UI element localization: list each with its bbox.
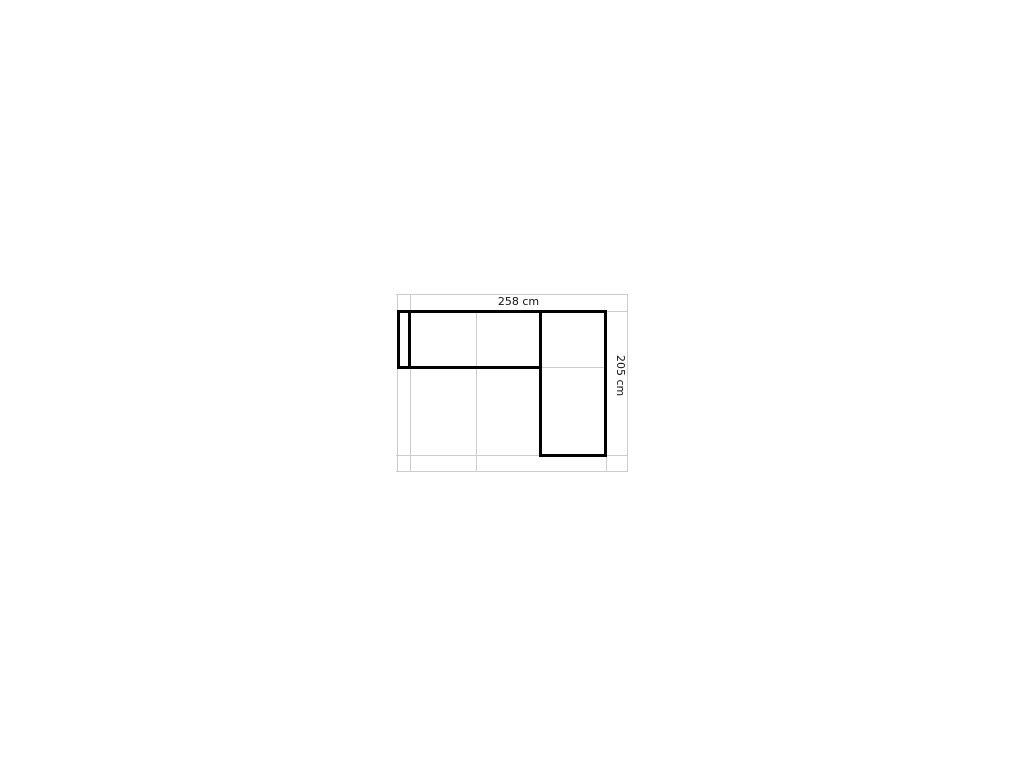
sofa-body-outline — [397, 310, 542, 369]
page-canvas: 258 cm 205 cm — [0, 0, 1024, 768]
height-dimension-label: 205 cm — [612, 294, 628, 457]
chaise-outline — [539, 310, 607, 457]
grid-line-bottom — [396, 471, 628, 472]
grid-line-below-chaise-right — [606, 455, 607, 472]
armrest-divider-line — [408, 310, 411, 369]
width-dimension-label: 258 cm — [410, 296, 627, 308]
